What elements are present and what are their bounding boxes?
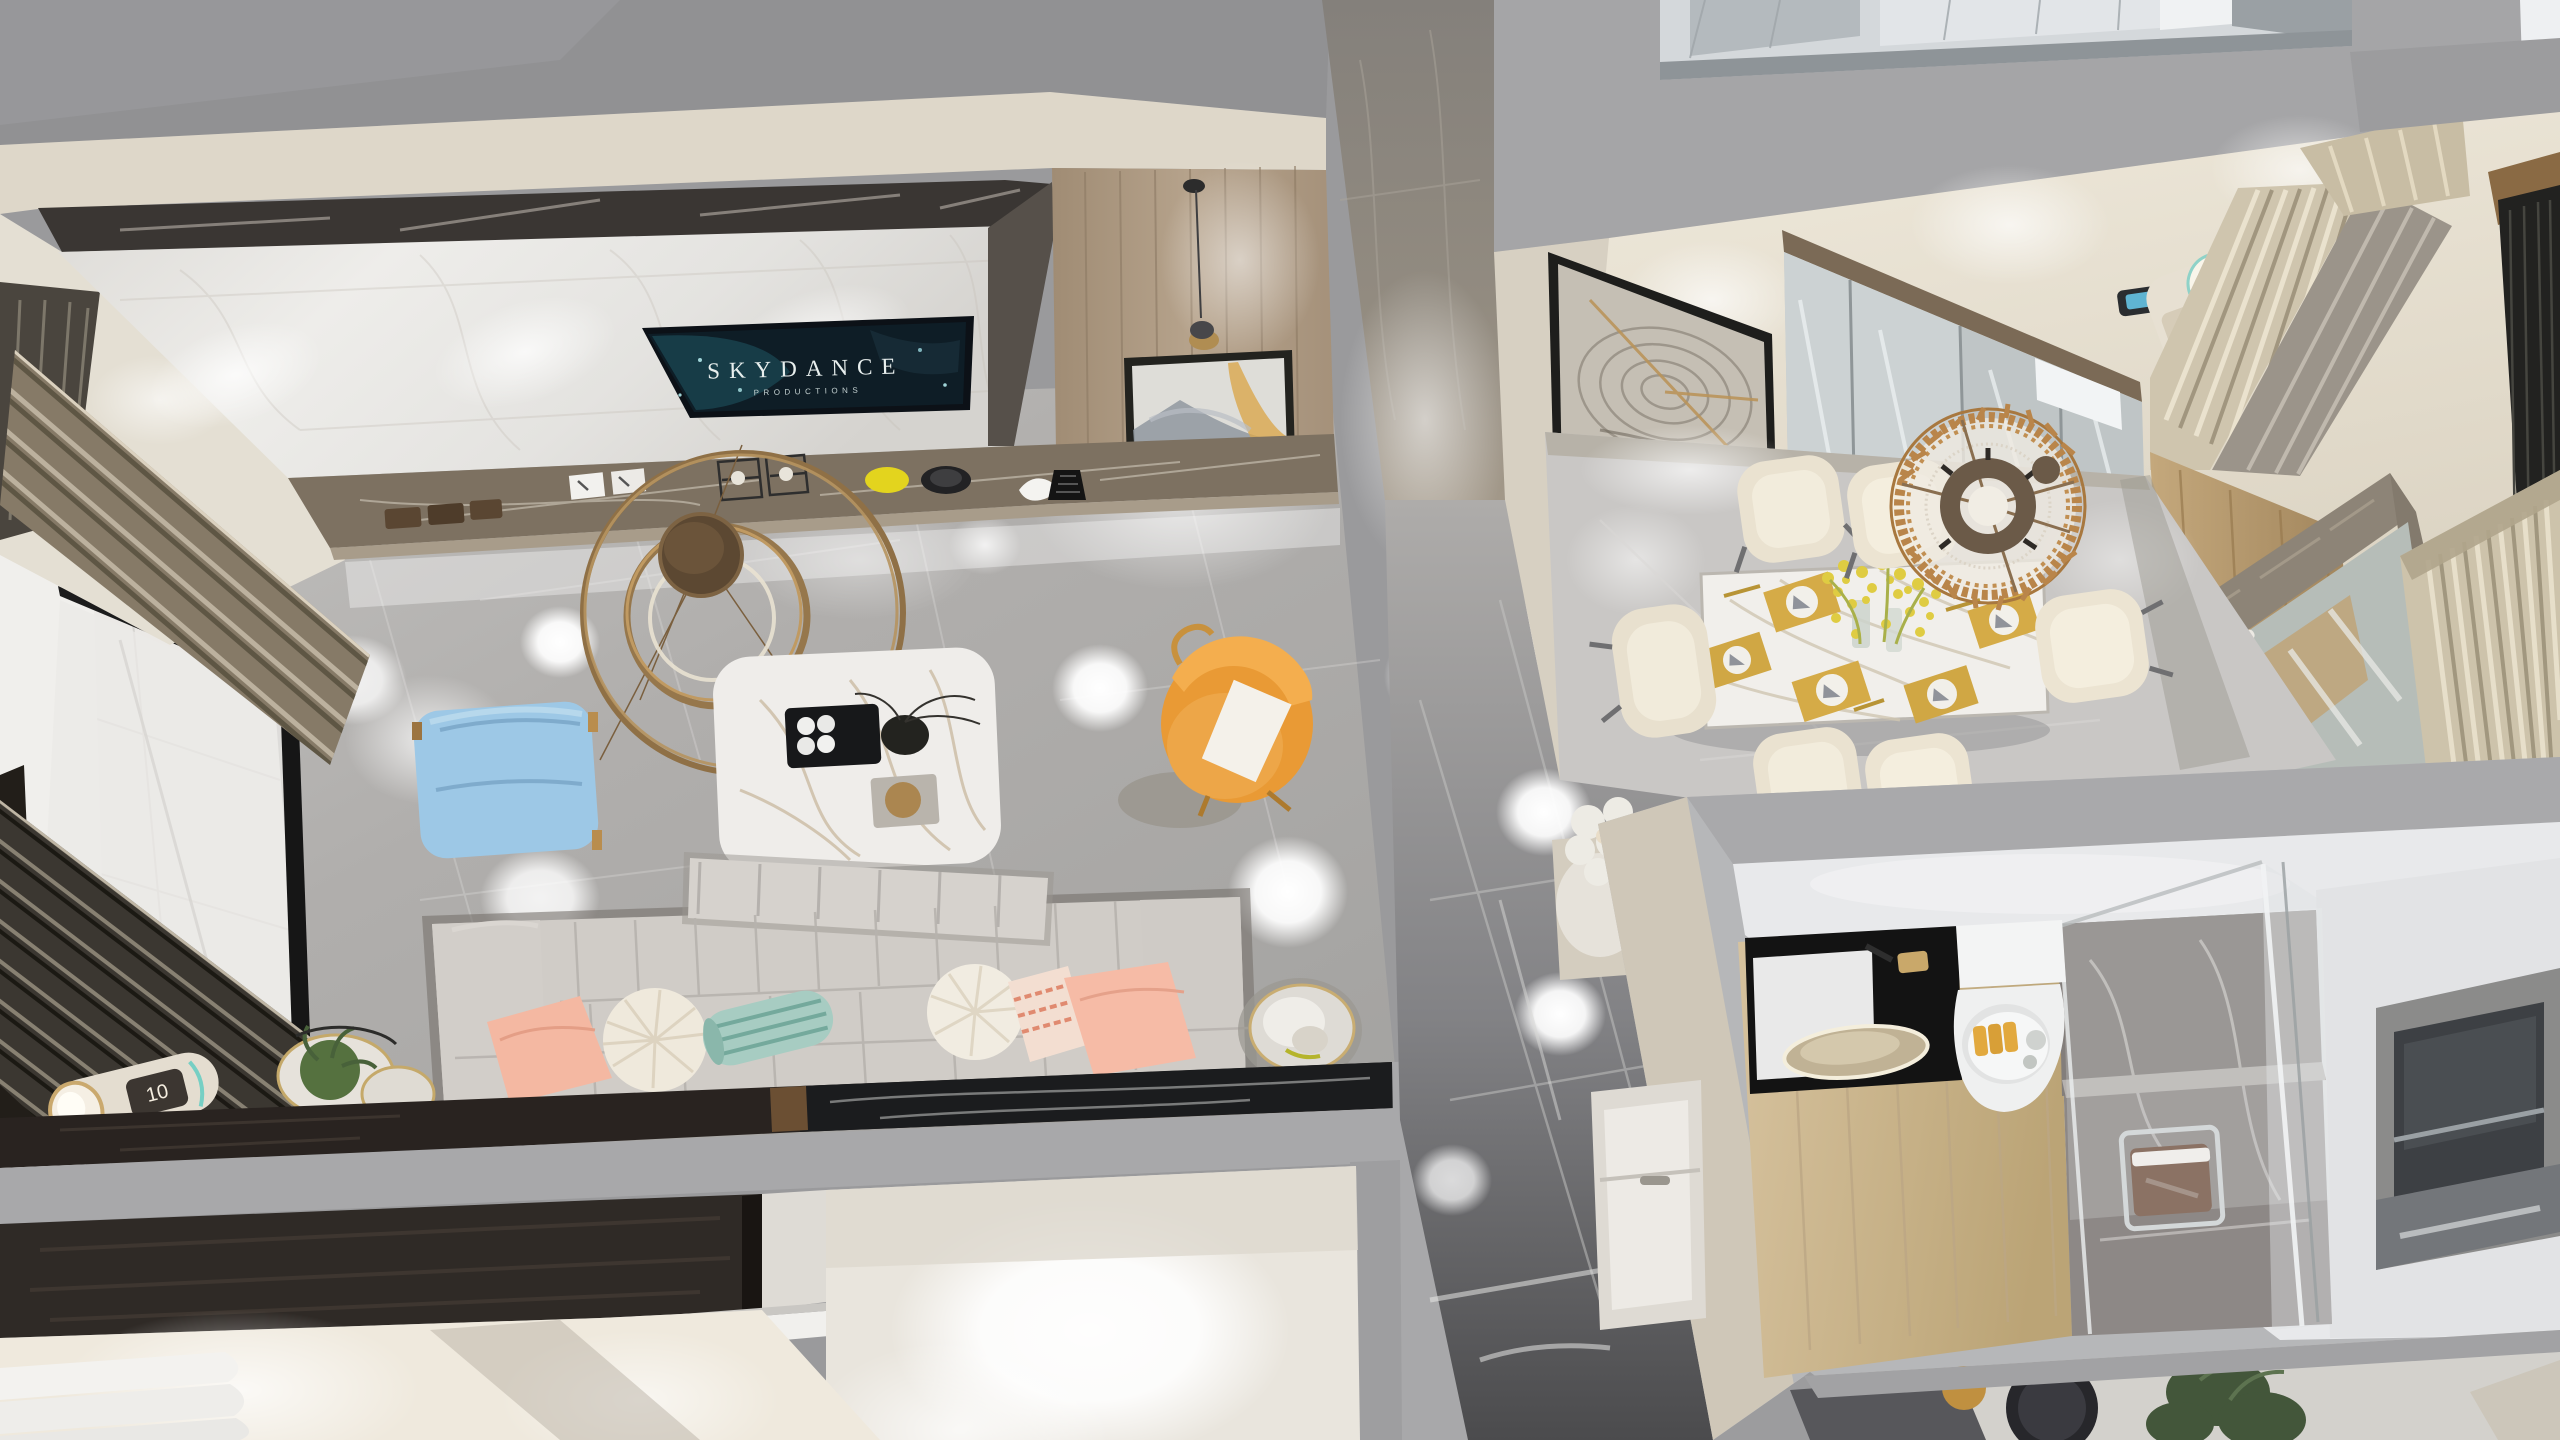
svg-text:SKYDANCE: SKYDANCE [707,353,905,383]
